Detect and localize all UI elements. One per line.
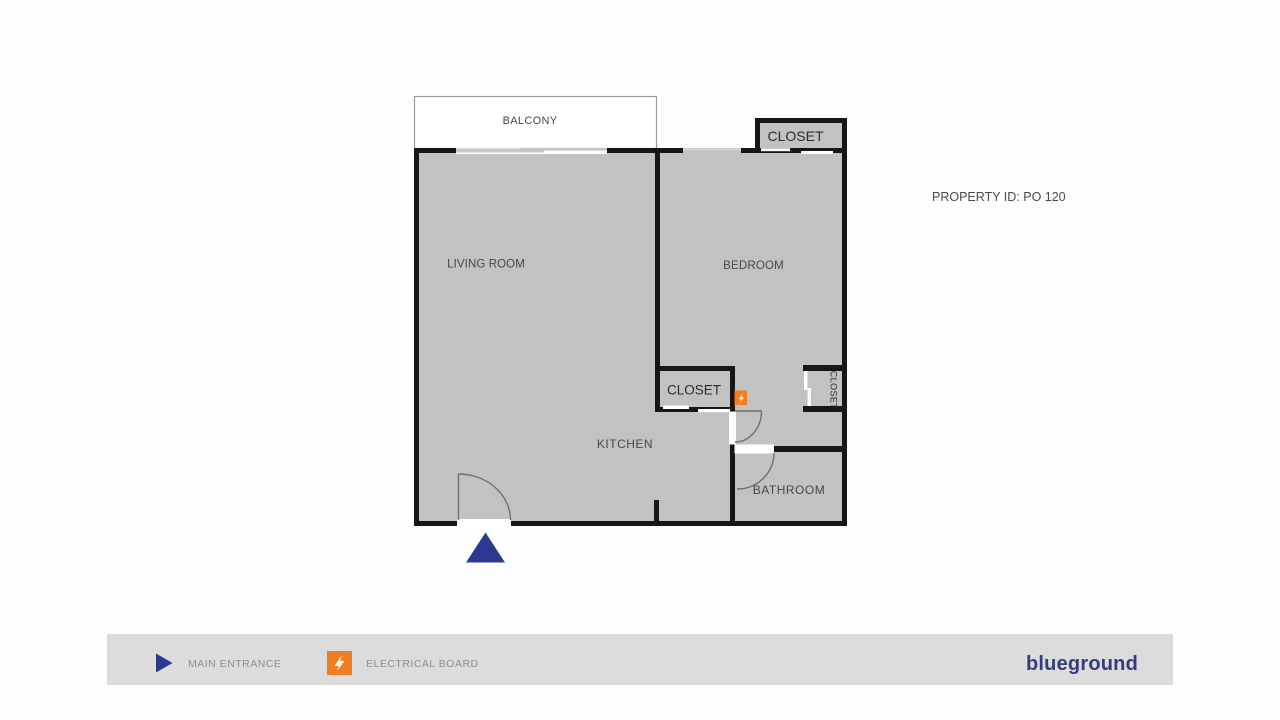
svg-text:ELECTRICAL BOARD: ELECTRICAL BOARD xyxy=(366,658,479,670)
svg-text:blueground: blueground xyxy=(1026,653,1138,675)
svg-text:PROPERTY ID: PO 120: PROPERTY ID: PO 120 xyxy=(932,190,1066,204)
svg-text:BEDROOM: BEDROOM xyxy=(723,260,784,272)
svg-text:BATHROOM: BATHROOM xyxy=(753,483,825,497)
svg-text:BALCONY: BALCONY xyxy=(503,115,558,127)
svg-text:LIVING ROOM: LIVING ROOM xyxy=(447,259,525,271)
svg-text:KITCHEN: KITCHEN xyxy=(597,437,653,451)
svg-text:CLOSET: CLOSET xyxy=(767,128,823,144)
svg-text:MAIN ENTRANCE: MAIN ENTRANCE xyxy=(188,658,281,670)
svg-text:CLOSET: CLOSET xyxy=(829,371,839,410)
svg-text:CLOSET: CLOSET xyxy=(667,383,721,398)
